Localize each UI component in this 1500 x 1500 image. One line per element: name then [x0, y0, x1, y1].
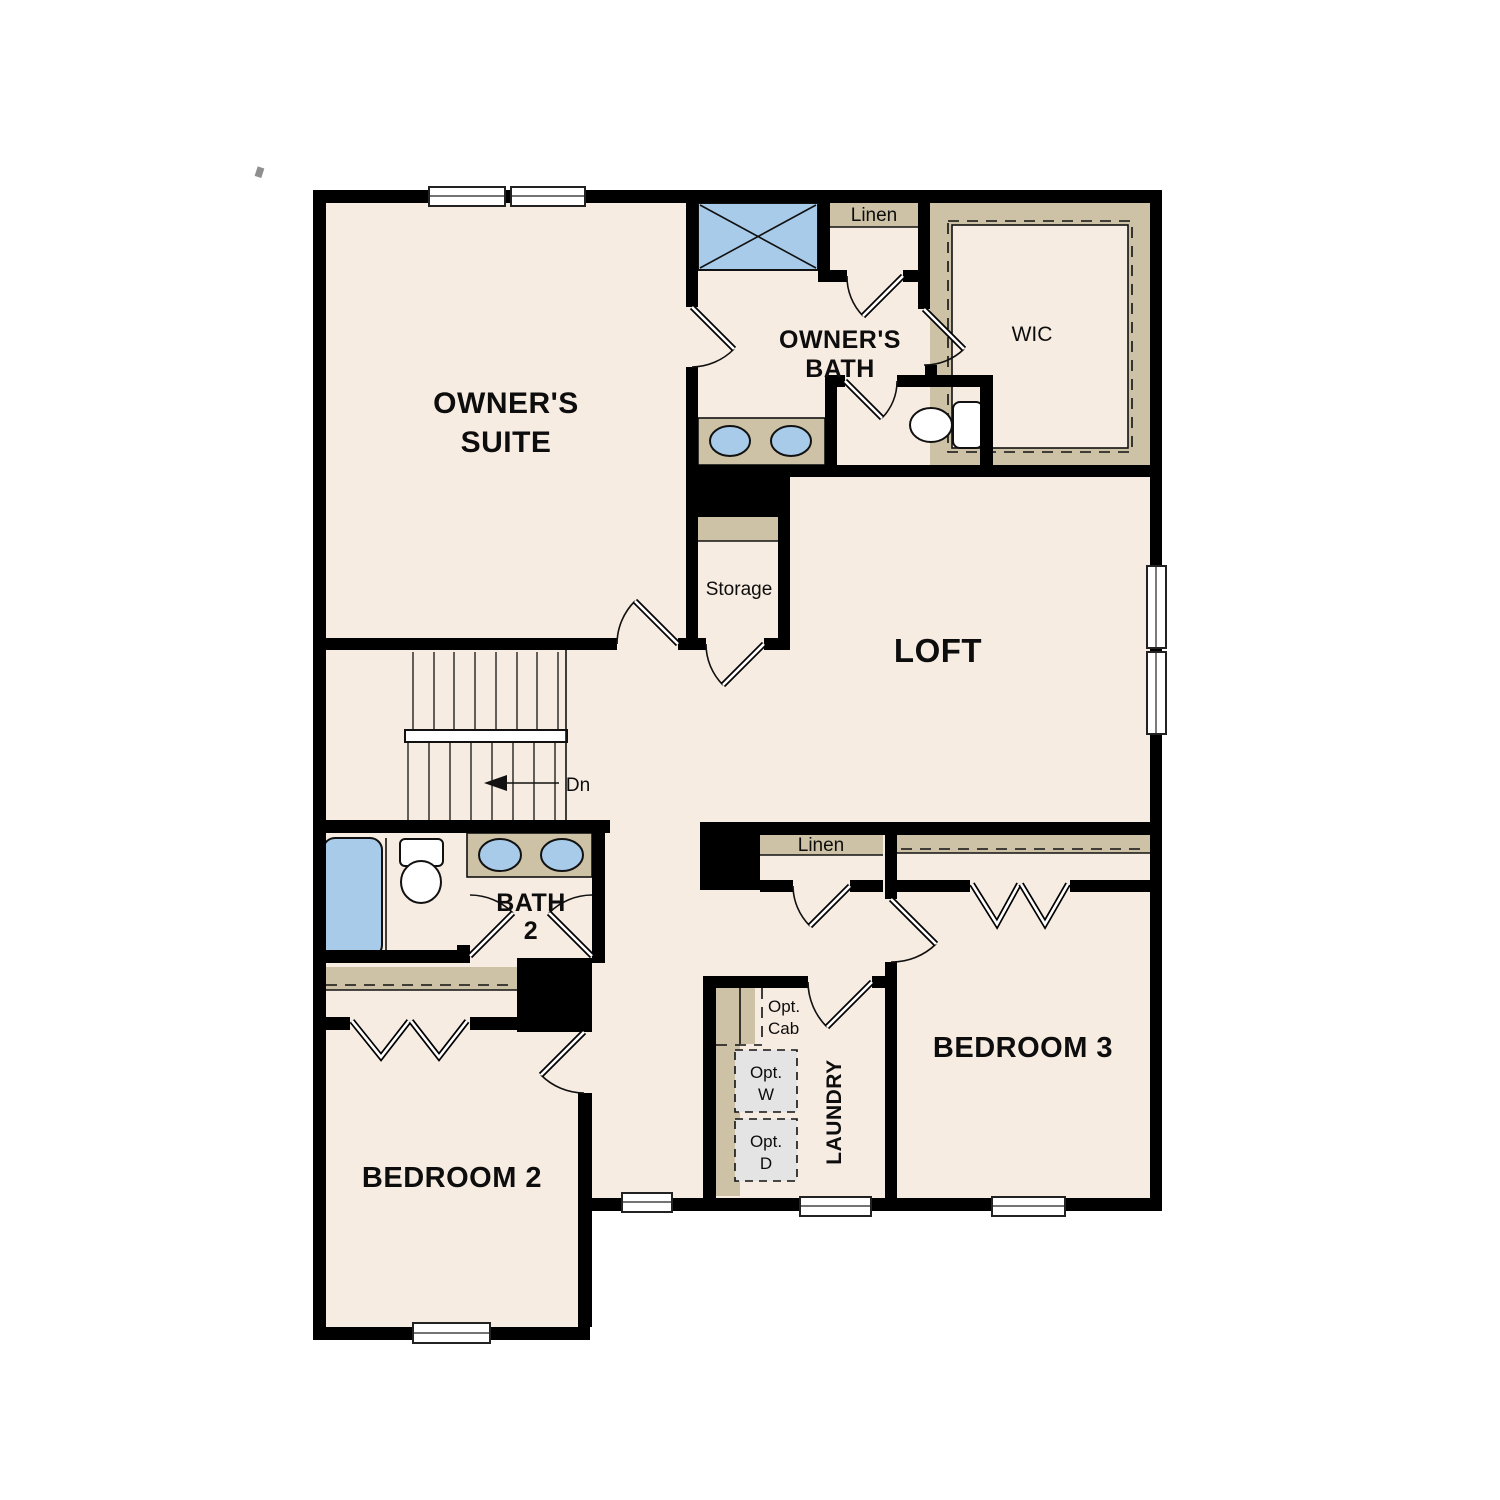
- window: [429, 187, 505, 206]
- wall-segment: [700, 822, 760, 890]
- window: [622, 1193, 672, 1212]
- wall-segment: [686, 465, 1150, 477]
- wall-segment: [764, 638, 790, 650]
- wall-segment: [760, 822, 1150, 835]
- wall-segment: [470, 1017, 517, 1030]
- wall-segment: [1070, 880, 1150, 892]
- wall-segment: [818, 203, 830, 282]
- laundry-cabinet: [716, 988, 755, 1044]
- wall-segment: [885, 822, 897, 899]
- wall-segment: [872, 976, 885, 988]
- opt-d-label: Opt.: [750, 1132, 782, 1151]
- window: [800, 1197, 871, 1216]
- floor-plan-drawing: OWNER'S SUITE OWNER'S BATH WIC LOFT Stor…: [0, 0, 1500, 1500]
- window: [413, 1323, 490, 1343]
- laundry-label: LAUNDRY: [823, 1059, 846, 1164]
- bedroom2-closet-shelf: [322, 967, 517, 990]
- wall-segment: [980, 375, 993, 470]
- window: [511, 187, 585, 206]
- wall-segment: [578, 1093, 592, 1327]
- wall-segment: [592, 833, 605, 963]
- shower: [698, 203, 818, 270]
- opt-w-label: Opt.: [750, 1063, 782, 1082]
- wall-segment: [686, 638, 706, 650]
- window: [1147, 566, 1166, 648]
- storage-shelf: [698, 517, 778, 541]
- wall-segment: [313, 820, 610, 833]
- stairs-down-label: Dn: [566, 775, 590, 796]
- wall-segment: [830, 270, 847, 282]
- wall-segment: [322, 1017, 350, 1030]
- wall-segment: [313, 950, 470, 963]
- bath2-label: 2: [524, 917, 538, 945]
- wic-label: WIC: [1012, 323, 1053, 346]
- wall-segment: [850, 880, 883, 892]
- sink: [710, 426, 750, 456]
- opt-cab-label: Cab: [768, 1019, 799, 1038]
- bedroom3-label: BEDROOM 3: [933, 1032, 1113, 1064]
- wall-segment: [703, 976, 716, 1198]
- wall-segment: [897, 375, 993, 387]
- sink: [771, 426, 811, 456]
- sink: [541, 839, 583, 871]
- storage-label: Storage: [706, 579, 773, 600]
- bedroom2-label: BEDROOM 2: [362, 1162, 542, 1194]
- owners-bath-label: OWNER'S: [779, 326, 901, 354]
- bath2-label: BATH: [496, 889, 566, 917]
- wall-segment: [897, 880, 970, 892]
- wall-segment: [686, 203, 698, 307]
- stair-landing-rail: [405, 730, 567, 742]
- wall-segment: [918, 190, 930, 309]
- window: [992, 1197, 1065, 1216]
- loft-label: LOFT: [894, 632, 982, 669]
- linen-owners-label: Linen: [851, 205, 898, 226]
- window: [1147, 652, 1166, 734]
- owners-suite-label: OWNER'S: [433, 387, 579, 420]
- wall-segment: [778, 517, 790, 650]
- print-artifact: [255, 166, 265, 178]
- wall-segment: [313, 638, 617, 650]
- wall-segment: [517, 958, 592, 1032]
- sink: [479, 839, 521, 871]
- wall-segment: [903, 270, 918, 282]
- wall-segment: [825, 375, 837, 470]
- wall-segment: [760, 880, 793, 892]
- floor-plan: OWNER'S SUITE OWNER'S BATH WIC LOFT Stor…: [0, 0, 1500, 1500]
- toilet: [400, 839, 443, 903]
- owners-suite-label: SUITE: [461, 426, 552, 459]
- wall-segment: [313, 190, 326, 1340]
- opt-cab-label: Opt.: [768, 997, 800, 1016]
- opt-w-label: W: [758, 1085, 774, 1104]
- wall-segment: [703, 976, 808, 988]
- wall-segment: [885, 962, 897, 1198]
- opt-d-label: D: [760, 1154, 772, 1173]
- owners-bath-label: BATH: [805, 355, 875, 383]
- linen-hall-label: Linen: [798, 835, 845, 856]
- bathtub: [323, 838, 382, 957]
